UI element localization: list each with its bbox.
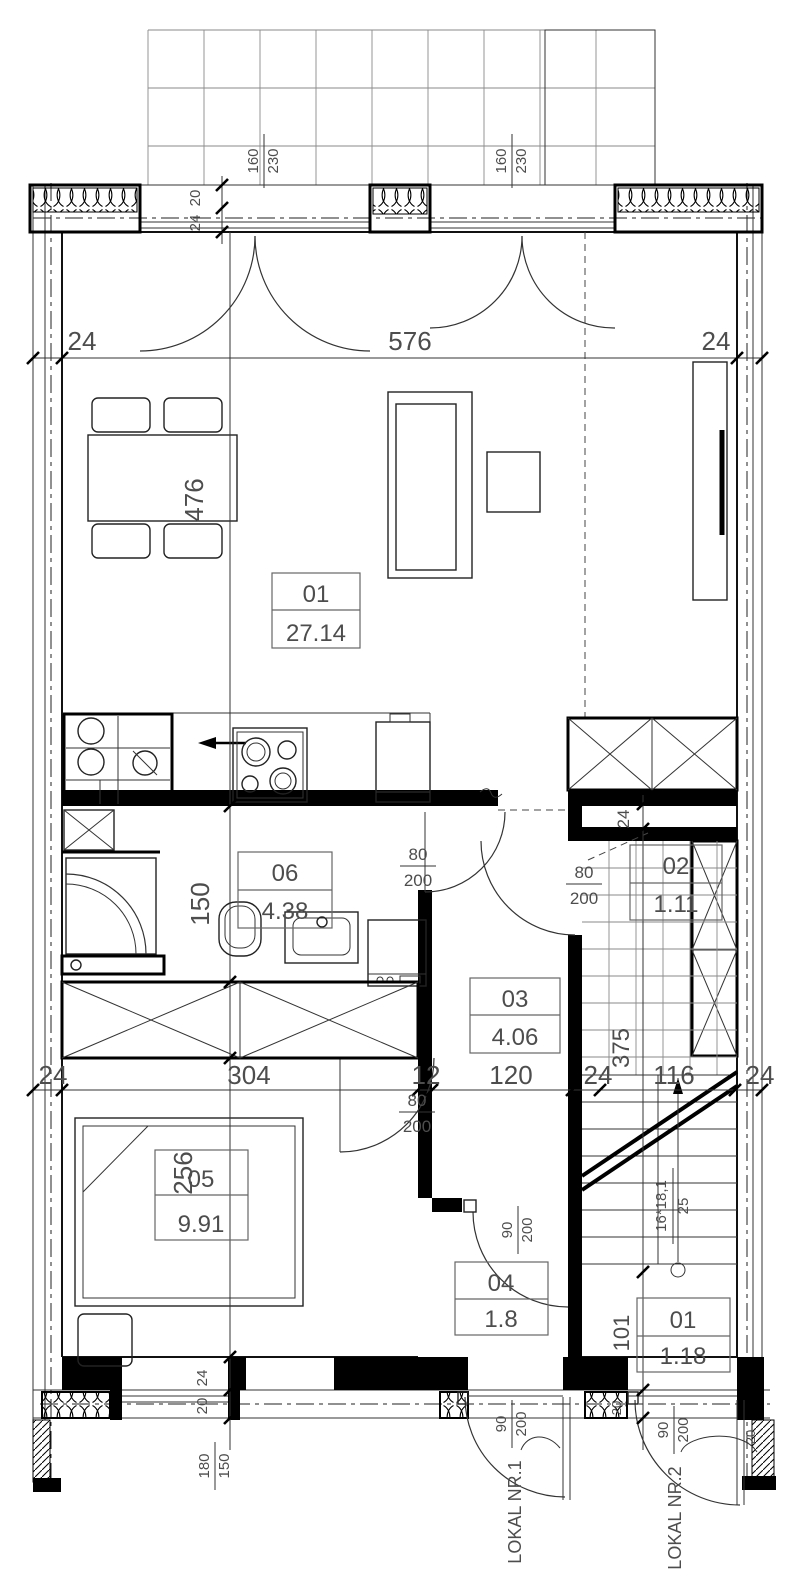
terrace-left-h: 230 xyxy=(265,148,282,173)
room-bath-id: 06 xyxy=(272,860,299,887)
terrace-left-w: 160 xyxy=(245,148,262,173)
terrace-right-h: 230 xyxy=(513,148,530,173)
dim-mid-0: 24 xyxy=(39,1060,68,1090)
room-entry2-area: 1.18 xyxy=(660,1343,707,1370)
room-storage-area: 1.11 xyxy=(654,891,699,918)
dim-shaft: 24 xyxy=(614,810,633,829)
vestibule-door-w: 90 xyxy=(499,1222,516,1239)
room-living-id: 01 xyxy=(303,581,330,608)
shower xyxy=(66,858,156,954)
dim-bottom-wall: 24 xyxy=(194,1370,211,1387)
room-labels: 01 27.14 06 4.38 02 1.11 03 4.06 05 9.91… xyxy=(155,573,730,1372)
bedroom-door-h: 200 xyxy=(403,1117,431,1136)
dim-bottom-insulation: 20 xyxy=(194,1398,211,1415)
room-bedroom-area: 9.91 xyxy=(178,1211,225,1238)
terrace-door-right-leaf2 xyxy=(522,236,615,328)
label-lokal-nr2: LOKAL NR.2 xyxy=(665,1466,685,1569)
dim-mid-2: 12 xyxy=(412,1060,441,1090)
dim-top-right: 24 xyxy=(702,326,731,356)
dim-stair-run: 375 xyxy=(608,1028,635,1068)
wardrobe-storage xyxy=(692,841,737,1056)
dim-mid-5: 116 xyxy=(653,1060,694,1090)
chair xyxy=(92,524,150,558)
leader-lokal1 xyxy=(521,1437,560,1450)
floor-drain xyxy=(71,960,81,970)
floor-plan-drawing: 01 27.14 06 4.38 02 1.11 03 4.06 05 9.91… xyxy=(0,0,810,1596)
dim-mid-1: 304 xyxy=(227,1060,270,1090)
dim-top-mid: 576 xyxy=(388,326,431,356)
storage-door-w: 80 xyxy=(575,863,594,882)
floor-tiles xyxy=(582,841,737,1075)
room-vestibule-id: 04 xyxy=(488,1270,515,1297)
dim-vestibule2: 101 xyxy=(609,1315,634,1352)
chair xyxy=(164,398,222,432)
bathroom-fixtures xyxy=(62,810,426,986)
bath-door-h: 200 xyxy=(404,871,432,890)
entrance2-h: 200 xyxy=(675,1417,692,1442)
terrace-door-right-size: 160 230 xyxy=(493,134,530,188)
terrace-door-left-size: 160 230 xyxy=(245,134,282,188)
room-vestib​ule-area: 1.8 xyxy=(484,1306,517,1333)
dining-table xyxy=(88,435,237,521)
dim-bedroom-height: 256 xyxy=(168,1151,198,1194)
room-entry2-id: 01 xyxy=(670,1307,697,1334)
terrace-paving xyxy=(148,30,655,185)
chair xyxy=(164,524,222,558)
dim-mid-3: 120 xyxy=(489,1060,532,1090)
wall-stairwell xyxy=(568,935,582,1357)
dimension-lines xyxy=(27,176,768,1450)
dim-topwall-masonry: 24 xyxy=(187,215,204,232)
terrace-door-right-leaf1 xyxy=(430,236,522,328)
entrance1-door-size: 90 200 xyxy=(493,1400,530,1448)
room-hall-area: 4.06 xyxy=(492,1024,539,1051)
bathroom-door-arc xyxy=(425,812,505,892)
coffee-table xyxy=(487,452,540,512)
chair xyxy=(92,398,150,432)
window-size-label: 180 150 xyxy=(196,1442,233,1490)
bath-door-w: 80 xyxy=(409,845,428,864)
room-bath-area: 4.38 xyxy=(262,898,309,925)
entrance2-door-arc xyxy=(635,1400,740,1505)
floor-plan-page: 01 27.14 06 4.38 02 1.11 03 4.06 05 9.91… xyxy=(0,0,810,1596)
stairs-risers: 16*18,1 xyxy=(653,1180,670,1232)
entrance1-h: 200 xyxy=(513,1411,530,1436)
dim-living-height: 476 xyxy=(179,478,209,521)
dim-wall20-a: 20 xyxy=(609,1401,624,1415)
entrance2-w: 90 xyxy=(655,1422,672,1439)
terrace-door-left-leaf2 xyxy=(255,236,370,351)
label-lokal-nr1: LOKAL NR.1 xyxy=(505,1460,525,1563)
dim-top-left: 24 xyxy=(68,326,97,356)
doors-and-windows xyxy=(122,232,744,1505)
window-width: 180 xyxy=(196,1453,213,1478)
sofa xyxy=(388,392,472,578)
dim-topwall-insulation: 20 xyxy=(187,190,204,207)
dim-mid-6: 24 xyxy=(746,1060,775,1090)
terrace-right-w: 160 xyxy=(493,148,510,173)
stairs-tread: 25 xyxy=(675,1198,692,1215)
window-height: 150 xyxy=(216,1453,233,1478)
dim-bath-height: 150 xyxy=(185,882,215,925)
entrance1-w: 90 xyxy=(493,1416,510,1433)
terrace-door-left-leaf1 xyxy=(140,236,255,351)
entrance2-door-size: 90 200 xyxy=(655,1406,692,1454)
pier-hatch-left xyxy=(33,1420,50,1482)
stairs-annotation: 16*18,1 25 xyxy=(653,1168,692,1244)
storage-door-h: 200 xyxy=(570,889,598,908)
room-storage-id: 02 xyxy=(663,853,690,880)
bedroom-door-w: 80 xyxy=(408,1091,427,1110)
room-living-area: 27.14 xyxy=(286,620,346,647)
storage-door-arc xyxy=(481,841,575,935)
bathroom-door-size: 80 200 xyxy=(400,845,436,890)
room-hall-id: 03 xyxy=(502,986,529,1013)
storage-door-size: 80 200 xyxy=(566,863,602,908)
vestibule-door-h: 200 xyxy=(519,1217,536,1242)
vestibule-door-size: 90 200 xyxy=(499,1206,536,1254)
